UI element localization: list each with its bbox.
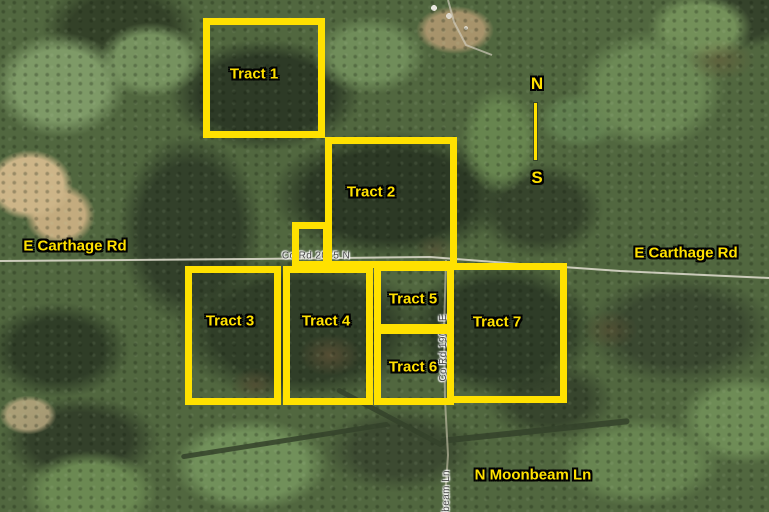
road-label-e-carthage-rd-right: E Carthage Rd [634,245,737,262]
tract-4-label: Tract 4 [302,313,350,330]
tract-1-label: Tract 1 [230,66,278,83]
tract-2-label: Tract 2 [347,184,395,201]
tract-3-boundary [185,266,281,405]
compass-north-label: N [531,74,543,94]
compass-south-label: S [531,168,542,188]
road-label-n-moonbeam-ln-vertical: N Moonbeam Ln [441,470,452,512]
tract-6-label: Tract 6 [389,359,437,376]
aerial-tract-map: Co Rd 2075 N Co Rd 1900 E N Moonbeam Ln … [0,0,769,512]
small-parcel-boundary [292,222,330,268]
tract-3-label: Tract 3 [206,313,254,330]
tract-7-boundary [447,263,567,403]
tract-4-boundary [283,266,373,405]
compass-line [534,103,537,160]
tract-7-label: Tract 7 [473,314,521,331]
road-label-e-carthage-rd-left: E Carthage Rd [23,238,126,255]
driveway-line [448,0,492,55]
tract-5-label: Tract 5 [389,291,437,308]
road-label-n-moonbeam-ln: N Moonbeam Ln [475,467,592,484]
tract-2-boundary [325,137,457,268]
